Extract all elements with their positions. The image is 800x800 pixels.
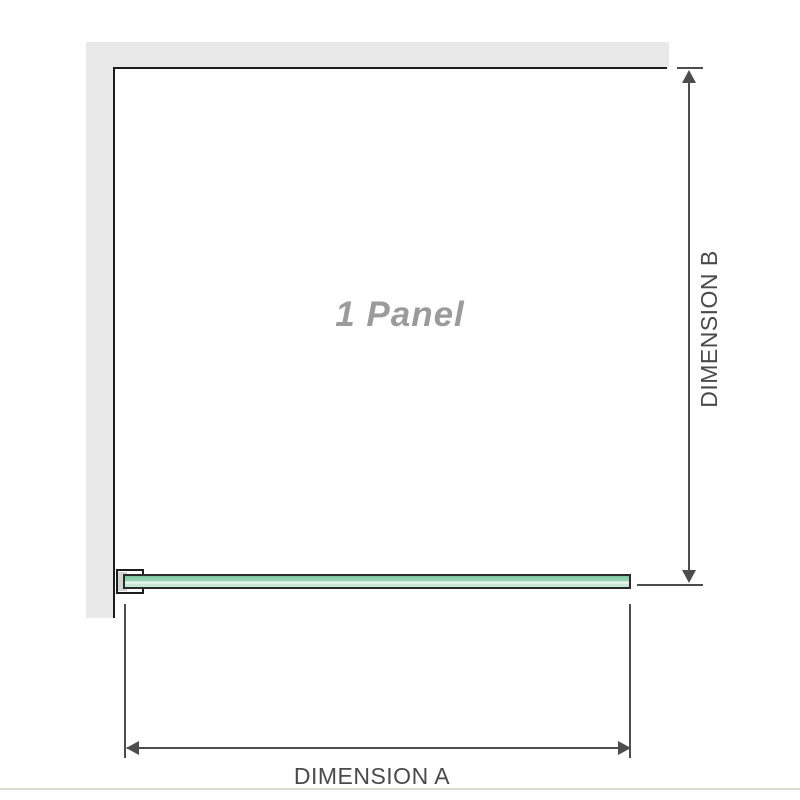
dimension-a-line [127,747,630,749]
dimension-b-arrowhead-top [682,70,696,83]
dimension-a-label: DIMENSION A [222,763,522,790]
panel-top-edge [113,67,667,69]
dimension-a-arrowhead-right [618,741,631,755]
dimension-b-cap-bottom [637,584,703,586]
dimension-a-extension-left [124,604,126,758]
glass-panel-bar [123,574,631,589]
wall-left-band [86,42,113,618]
dimension-a-extension-right [629,604,631,758]
dimension-a-arrowhead-left [126,741,139,755]
dimension-b-line [688,74,690,576]
page-bottom-divider [0,788,800,790]
dimension-b-arrowhead-bottom [682,570,696,583]
dimension-b-label: DIMENSION B [696,229,722,429]
panel-left-edge [113,67,115,618]
panel-dimension-diagram: 1 Panel DIMENSION B DIMENSION A [0,0,800,800]
panel-count-label: 1 Panel [250,295,550,335]
wall-top-band [86,42,669,68]
